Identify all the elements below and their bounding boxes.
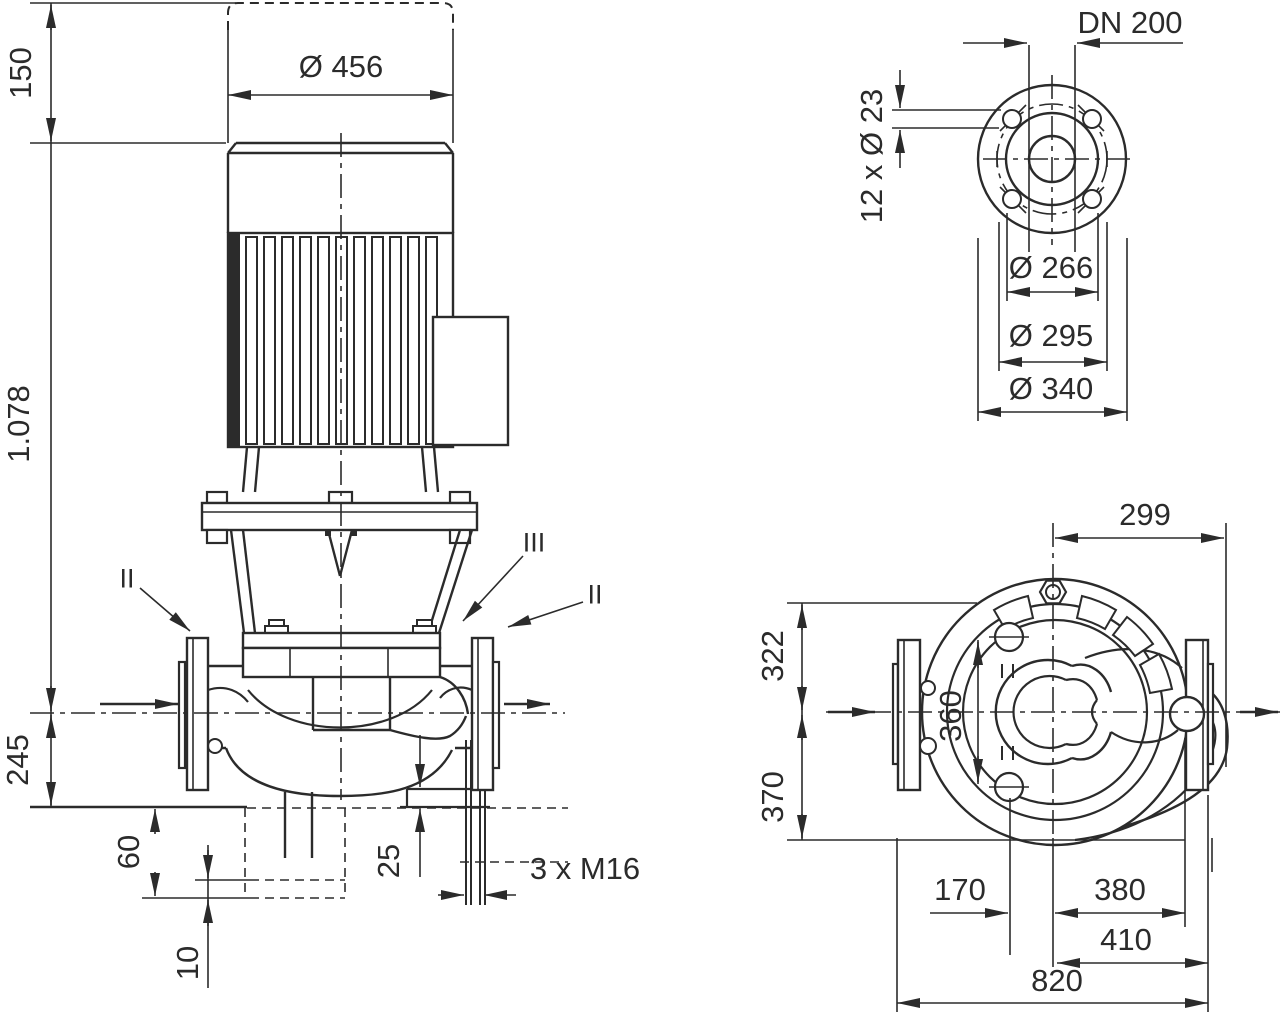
dim-label-322: 322 xyxy=(755,630,790,682)
drawing-canvas: 150 1.078 245 Ø 456 60 10 25 3 x M16 xyxy=(0,0,1280,1024)
dim-label-3xM16: 3 x M16 xyxy=(530,851,640,886)
dim-label-dia456: Ø 456 xyxy=(299,49,383,84)
dim-label-10: 10 xyxy=(170,946,205,980)
dim-label-150: 150 xyxy=(3,47,38,99)
dim-label-dia340: Ø 340 xyxy=(1009,371,1093,406)
dim-label-410: 410 xyxy=(1100,922,1152,957)
dim-label-dia266: Ø 266 xyxy=(1009,250,1093,285)
dim-label-380: 380 xyxy=(1094,872,1146,907)
section-label-II-right: II xyxy=(587,579,602,609)
dim-label-dn200: DN 200 xyxy=(1077,5,1182,40)
discharge-boss xyxy=(1170,697,1204,731)
dim-label-360: 360 xyxy=(933,690,968,742)
dim-label-12xdia23: 12 x Ø 23 xyxy=(854,89,889,223)
dim-label-60: 60 xyxy=(111,835,146,869)
terminal-box xyxy=(433,317,508,445)
dim-label-1078: 1.078 xyxy=(1,385,36,463)
dim-label-299: 299 xyxy=(1119,497,1171,532)
dim-label-170: 170 xyxy=(934,872,986,907)
drain-plug-boss xyxy=(208,739,222,753)
dim-label-dia295: Ø 295 xyxy=(1009,318,1093,353)
pump-dimension-drawing: 150 1.078 245 Ø 456 60 10 25 3 x M16 xyxy=(0,0,1280,1024)
section-label-II-left: II xyxy=(119,563,134,593)
dim-label-25: 25 xyxy=(371,844,406,878)
dim-label-370: 370 xyxy=(755,771,790,823)
dim-label-245: 245 xyxy=(0,734,35,786)
dim-label-820: 820 xyxy=(1031,963,1083,998)
section-label-III: III xyxy=(523,527,546,557)
plan-suction-flange xyxy=(893,640,920,790)
